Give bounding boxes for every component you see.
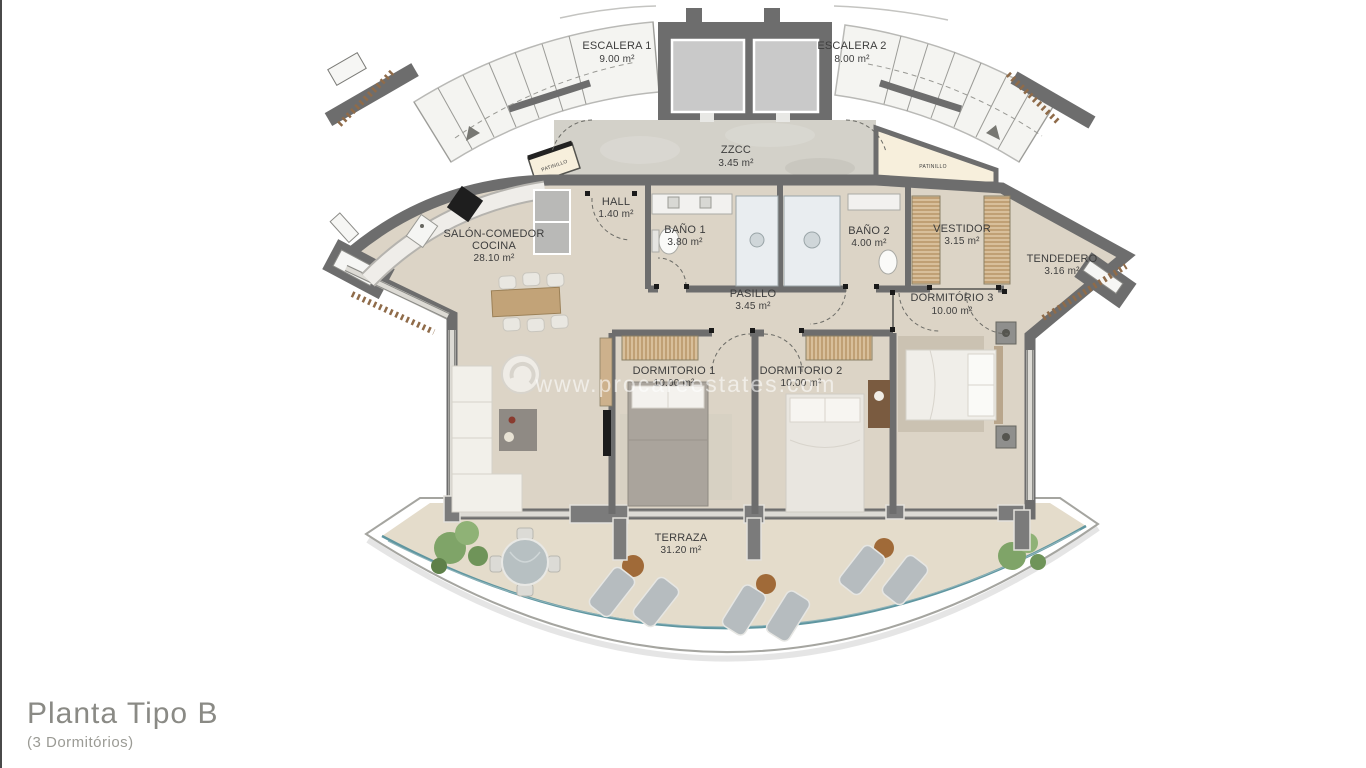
- faucet: [420, 224, 424, 228]
- window-pane: [330, 213, 358, 243]
- room-label-dormitorio3: DORMITÓRIO 3: [910, 291, 993, 304]
- room-label-vestidor: VESTIDOR: [933, 223, 991, 235]
- roof-outline: [560, 6, 656, 18]
- room-label-hall: HALL: [602, 196, 630, 208]
- room-label-pasillo: PASILLO: [730, 288, 777, 300]
- wardrobe: [912, 196, 940, 284]
- elevator-shaft-1: [672, 40, 744, 112]
- shower-drain: [750, 233, 764, 247]
- room-label-escalera2: ESCALERA 2: [817, 40, 886, 52]
- dining-chair: [547, 273, 565, 287]
- vanity-counter: [848, 194, 900, 210]
- room-area-vestidor: 3.15 m²: [944, 236, 980, 247]
- terrace: [366, 498, 1098, 659]
- title-block: Planta Tipo B (3 Dormitórios): [27, 697, 218, 751]
- wardrobe: [622, 336, 698, 360]
- wardrobe: [806, 336, 872, 360]
- room-label-patinillo-right: PATINILLO: [919, 164, 947, 170]
- watermark-text: www.procareestates.com: [535, 371, 837, 397]
- terrace-chair: [548, 556, 560, 572]
- room-area-pasillo: 3.45 m²: [735, 301, 771, 312]
- core-door-notch: [776, 113, 790, 122]
- dining-table: [491, 287, 560, 317]
- room-area-tendedero: 3.16 m²: [1044, 266, 1080, 277]
- core-door-notch: [700, 113, 714, 122]
- room-label-salon: SALÓN-COMEDOR: [444, 227, 545, 240]
- room-label-escalera1: ESCALERA 1: [582, 40, 651, 52]
- floor-plan-page: ESCALERA 1 9.00 m² ESCALERA 2 8.00 m² ZZ…: [0, 0, 1366, 768]
- dining-chair: [551, 315, 569, 329]
- room-label-bano2: BAÑO 2: [848, 224, 890, 237]
- dining-chair: [499, 276, 517, 290]
- plan-subtitle: (3 Dormitórios): [27, 734, 218, 751]
- bedroom-3: [898, 322, 1016, 448]
- dresser-decor: [874, 391, 884, 401]
- room-label-bano1: BAÑO 1: [664, 223, 706, 236]
- room-label-tendedero: TENDEDERO: [1027, 253, 1098, 265]
- plant-foliage: [455, 521, 479, 545]
- table-decor: [504, 432, 514, 442]
- dresser: [868, 380, 890, 428]
- toilet: [879, 250, 897, 274]
- wardrobe: [984, 196, 1010, 284]
- plant-foliage: [1030, 554, 1046, 570]
- table-decor: [509, 417, 516, 424]
- room-area-zzcc: 3.45 m²: [718, 158, 754, 169]
- room-area-escalera2: 8.00 m²: [834, 54, 870, 65]
- room-area-terraza: 31.20 m²: [660, 545, 702, 556]
- plant-foliage: [468, 546, 488, 566]
- shower-drain: [804, 232, 820, 248]
- dining-chair: [527, 318, 545, 332]
- room-label-zzcc: ZZCC: [721, 144, 751, 156]
- room-area-escalera1: 9.00 m²: [599, 54, 635, 65]
- room-area-bano1: 3.80 m²: [667, 237, 703, 248]
- plan-title: Planta Tipo B: [27, 697, 218, 731]
- sink-basin: [700, 197, 711, 208]
- toilet-tank: [652, 230, 659, 252]
- dining-chair: [503, 317, 521, 331]
- page-left-border: [0, 0, 2, 768]
- room-label-terraza: TERRAZA: [655, 532, 708, 544]
- dining-chair: [522, 272, 540, 286]
- sink-basin: [668, 197, 679, 208]
- sofa-chaise: [452, 474, 522, 512]
- wall-stub: [686, 8, 702, 23]
- roof-outline: [834, 6, 948, 20]
- wall-stub: [764, 8, 780, 23]
- room-area-bano2: 4.00 m²: [851, 238, 887, 249]
- vanity-counter: [652, 194, 732, 214]
- elevator-core: [658, 8, 832, 122]
- coffee-table: [499, 409, 537, 451]
- room-area-hall: 1.40 m²: [598, 209, 634, 220]
- floor-plan-image: ESCALERA 1 9.00 m² ESCALERA 2 8.00 m² ZZ…: [0, 0, 1366, 768]
- nightstand-decor: [1002, 329, 1010, 337]
- room-area-salon: 28.10 m²: [473, 253, 515, 264]
- nightstand-decor: [1002, 433, 1010, 441]
- elevator-shaft-2: [754, 40, 818, 112]
- terrace-chair: [490, 556, 502, 572]
- plant-foliage: [431, 558, 447, 574]
- curve-window: [330, 213, 358, 243]
- stub-window: [328, 53, 366, 86]
- room-area-dormitorio3: 10.00 m²: [931, 306, 973, 317]
- floor-texture: [600, 136, 680, 164]
- room-label-salon-2: COCINA: [472, 240, 516, 252]
- tv-unit: [603, 410, 611, 456]
